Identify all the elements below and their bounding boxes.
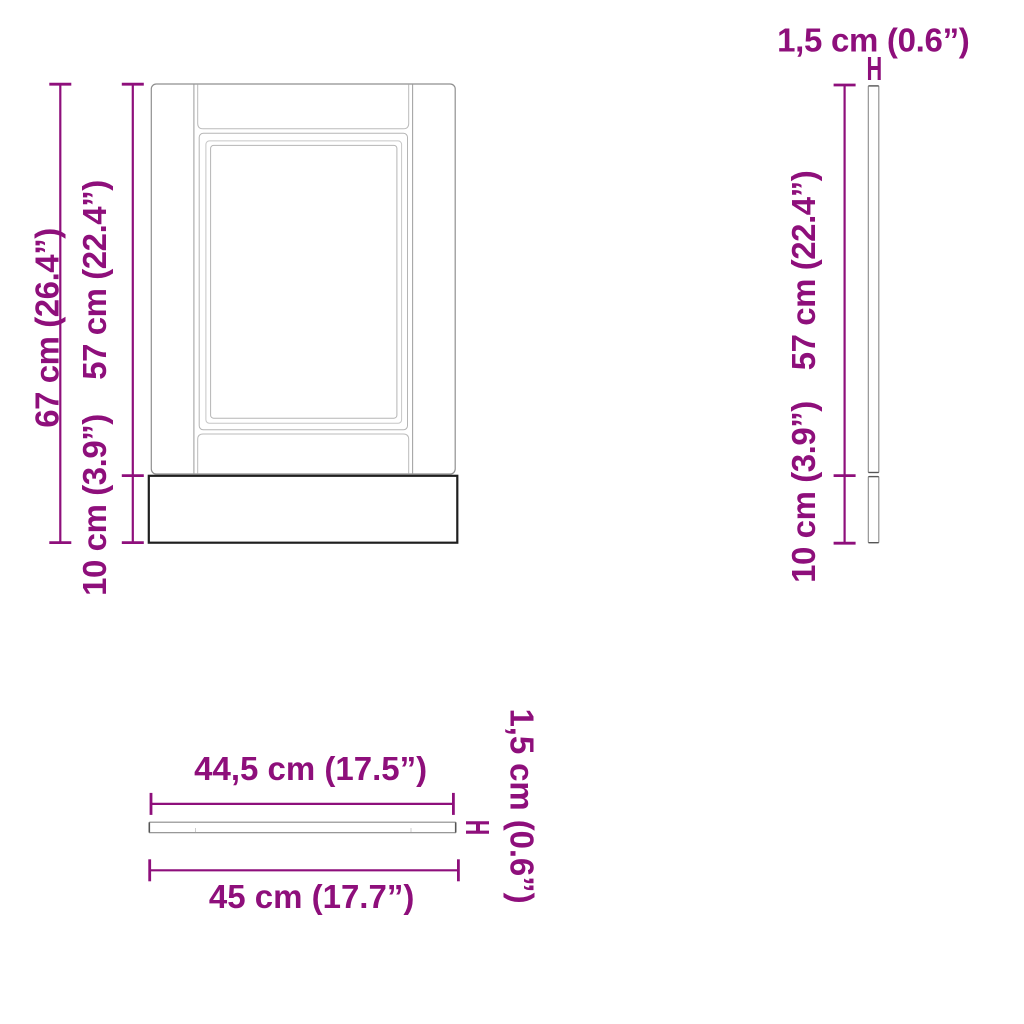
svg-text:44,5 cm (17.5”): 44,5 cm (17.5”) — [194, 750, 427, 787]
svg-text:45 cm (17.7”): 45 cm (17.7”) — [209, 878, 414, 915]
svg-text:67 cm (26.4”): 67 cm (26.4”) — [29, 228, 66, 428]
svg-text:57 cm (22.4”): 57 cm (22.4”) — [76, 180, 113, 380]
svg-text:57 cm (22.4”): 57 cm (22.4”) — [785, 171, 822, 371]
svg-text:H: H — [459, 820, 496, 835]
svg-text:10 cm (3.9”): 10 cm (3.9”) — [785, 401, 822, 583]
svg-text:10 cm (3.9”): 10 cm (3.9”) — [76, 414, 113, 596]
svg-text:1,5 cm (0.6”): 1,5 cm (0.6”) — [504, 709, 541, 904]
svg-text:H: H — [867, 50, 883, 87]
